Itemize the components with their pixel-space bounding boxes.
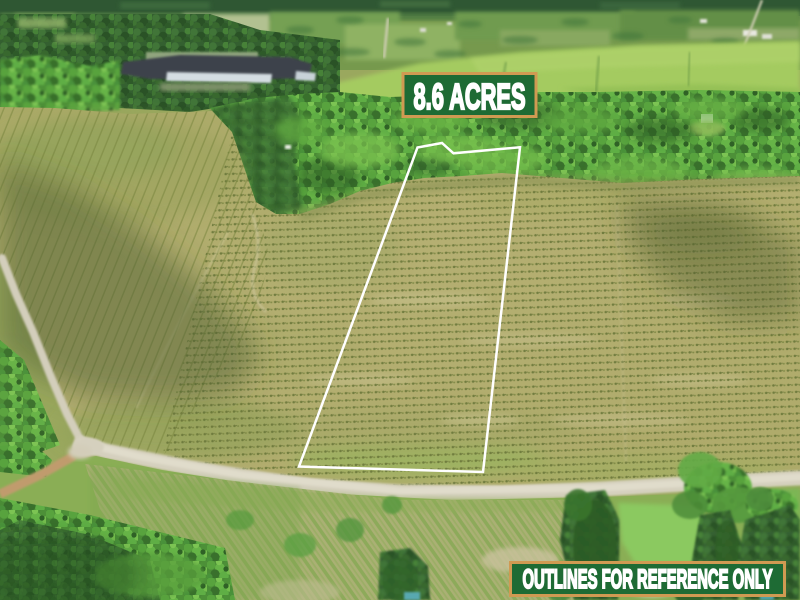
svg-text:8.6 ACRES: 8.6 ACRES	[414, 76, 526, 117]
svg-text:OUTLINES FOR REFERENCE ONLY: OUTLINES FOR REFERENCE ONLY	[523, 564, 773, 594]
